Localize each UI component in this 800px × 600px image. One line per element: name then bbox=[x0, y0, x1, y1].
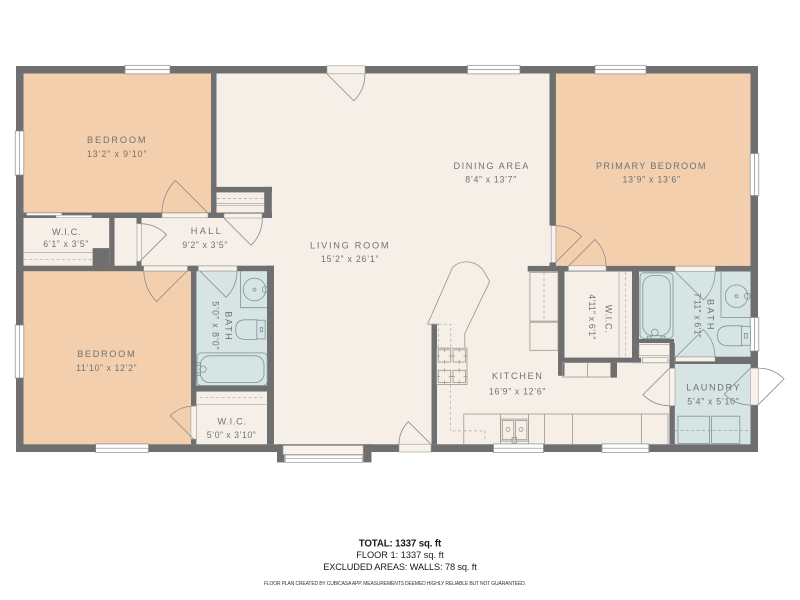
svg-text:W.I.C.: W.I.C. bbox=[52, 227, 82, 237]
svg-text:8’4” x 13’7”: 8’4” x 13’7” bbox=[465, 175, 517, 185]
svg-text:BEDROOM: BEDROOM bbox=[77, 349, 136, 359]
svg-text:EXCLUDED AREAS: WALLS: 78 sq.: EXCLUDED AREAS: WALLS: 78 sq. ft bbox=[323, 562, 477, 572]
svg-text:13’9” x 13’6”: 13’9” x 13’6” bbox=[623, 175, 681, 185]
svg-text:FLOOR 1: 1337 sq. ft: FLOOR 1: 1337 sq. ft bbox=[356, 550, 444, 560]
svg-text:HALL: HALL bbox=[191, 226, 223, 236]
svg-text:6’1” x 3’5”: 6’1” x 3’5” bbox=[43, 239, 89, 249]
svg-text:7’11” x 6’1”: 7’11” x 6’1” bbox=[692, 293, 702, 339]
svg-text:5’0” x 8’0”: 5’0” x 8’0” bbox=[211, 301, 221, 350]
svg-text:TOTAL: 1337 sq. ft: TOTAL: 1337 sq. ft bbox=[359, 539, 442, 550]
svg-text:BATH: BATH bbox=[224, 311, 234, 341]
svg-text:W.I.C.: W.I.C. bbox=[218, 417, 248, 427]
svg-text:KITCHEN: KITCHEN bbox=[492, 371, 544, 381]
svg-text:5’0” x 3’10”: 5’0” x 3’10” bbox=[207, 430, 257, 440]
svg-text:16’9” x 12’6”: 16’9” x 12’6” bbox=[489, 386, 546, 396]
svg-text:11’10” x 12’2”: 11’10” x 12’2” bbox=[76, 363, 137, 373]
svg-text:BEDROOM: BEDROOM bbox=[87, 135, 147, 145]
svg-text:LAUNDRY: LAUNDRY bbox=[686, 383, 741, 393]
svg-text:PRIMARY BEDROOM: PRIMARY BEDROOM bbox=[596, 161, 707, 171]
svg-text:4’11” x 6’1”: 4’11” x 6’1” bbox=[587, 294, 597, 340]
svg-text:LIVING ROOM: LIVING ROOM bbox=[310, 241, 390, 251]
svg-text:W.I.C.: W.I.C. bbox=[604, 305, 614, 335]
svg-text:5’4” x 5’10”: 5’4” x 5’10” bbox=[687, 397, 739, 407]
svg-text:FLOOR PLAN CREATED BY CUBICASA: FLOOR PLAN CREATED BY CUBICASA APP. MEAS… bbox=[264, 581, 526, 587]
svg-text:9’2” x 3’5”: 9’2” x 3’5” bbox=[182, 240, 228, 250]
svg-text:15’2” x 26’1”: 15’2” x 26’1” bbox=[321, 254, 379, 264]
svg-text:13’2” x 9’10”: 13’2” x 9’10” bbox=[87, 149, 147, 159]
svg-text:DINING AREA: DINING AREA bbox=[453, 161, 530, 171]
svg-text:BATH: BATH bbox=[706, 299, 716, 331]
